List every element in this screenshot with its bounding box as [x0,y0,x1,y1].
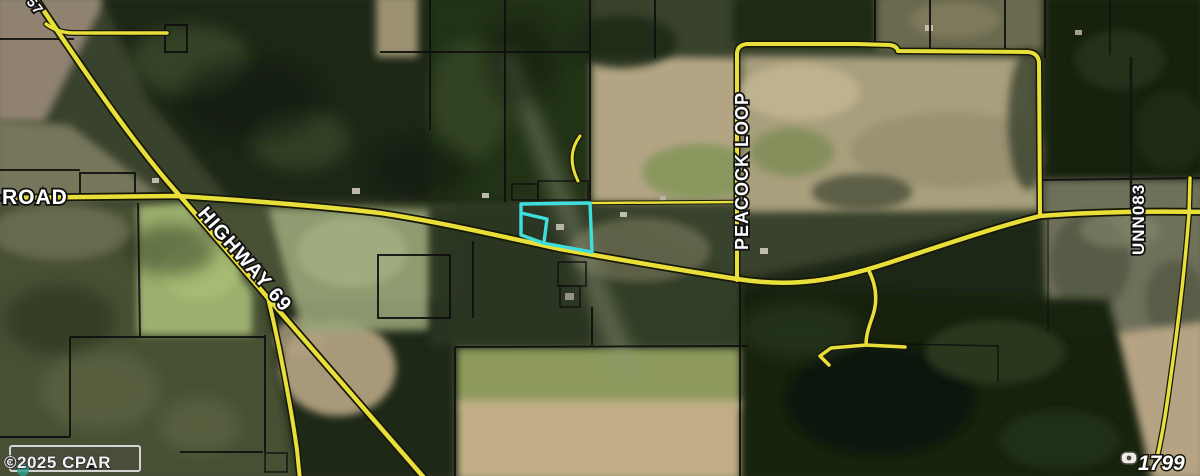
label-unn083: UNN083 [1129,184,1148,255]
parcel-number-label: 1799 [1138,452,1185,475]
aerial-imagery [0,0,1200,476]
map-viewport[interactable]: -ROAD HIGHWAY 69 PEACOCK LOOP UNN083 57 … [0,0,1200,476]
road-thin-connector [590,202,737,203]
parcel-map[interactable]: -ROAD HIGHWAY 69 PEACOCK LOOP UNN083 57 … [0,0,1200,476]
copyright-watermark: ©2025 CPAR [4,453,111,472]
label-peacock-loop: PEACOCK LOOP [732,92,752,250]
label-road-west: -ROAD [0,186,68,209]
